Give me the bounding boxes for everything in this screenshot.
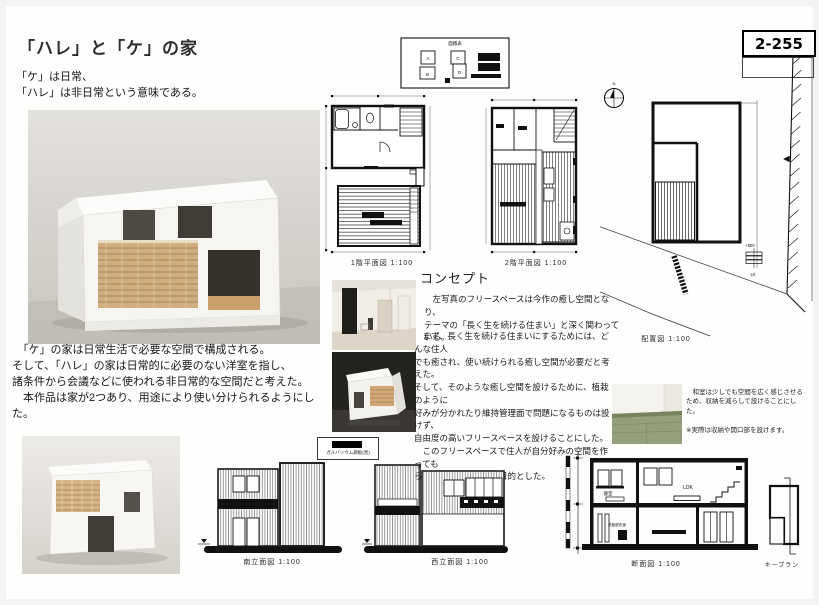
plan-2f-drawing [482,94,586,258]
material-swatch [332,441,362,448]
elevation-south-drawing [196,446,350,560]
svg-text:+500: +500 [745,243,755,248]
svg-text:B: B [426,72,429,77]
site-boundary-hatch [784,56,813,312]
tatami-note-text: 和室は少しでも空間を広く感じさせる ため、収納を減らして設けることにし た。 ※… [686,388,812,435]
wood-deck [98,240,198,308]
svg-text:N: N [613,81,616,86]
svg-text:洗面脱衣室: 洗面脱衣室 [608,522,626,527]
keyplan-label: キープラン [752,560,812,569]
section-drawing: 寝室 LDK 洗面脱衣室 [548,444,762,562]
north-arrow-icon: N [605,81,624,108]
plan-2f-label: 2階平面図 1:100 [486,258,586,268]
svg-text:A: A [426,56,429,61]
svg-text:面積表: 面積表 [448,40,462,47]
tatami-room-photo [612,384,682,444]
description-text: 「ケ」の家は日常生活で必要な空間で構成される。 そして、「ハレ」の家は日常的に必… [12,343,320,423]
secondary-model-photo [22,436,180,574]
section-label: 断面図 1:100 [616,559,696,569]
elevation-south-label: 南立面図 1:100 [222,557,322,567]
model-photo-illustration [28,110,320,344]
main-model-photo [28,110,320,344]
presentation-sheet: 「ハレ」と「ケ」の家 「ケ」は日常、 「ハレ」は非日常という意味である。 2-2… [0,0,819,605]
elevation-west-label: 西立面図 1:100 [410,557,510,567]
concept-heading: コンセプト [420,268,490,287]
svg-text:±0: ±0 [751,272,756,277]
site-plan-drawing: N +500 ±0 [600,56,815,351]
elevation-west-drawing [360,446,514,560]
model-wood-slats [370,386,394,406]
sheet-number: 2-255 [742,30,816,57]
keyplan-drawing [760,474,806,560]
model-photo-dark [332,352,416,432]
wood-balcony [56,480,100,512]
site-plan-label: 配置図 1:100 [626,334,706,344]
svg-text:寝室: 寝室 [604,490,613,496]
svg-text:LDK: LDK [683,485,693,491]
page-title: 「ハレ」と「ケ」の家 [18,34,198,59]
area-table-drawing: 面積表 A B C D [398,26,512,92]
plan-1f-drawing [320,90,436,256]
interior-photo [332,280,416,350]
plan-1f-label: 1階平面図 1:100 [332,258,432,268]
intro-text: 「ケ」は日常、 「ハレ」は非日常という意味である。 [16,70,203,102]
